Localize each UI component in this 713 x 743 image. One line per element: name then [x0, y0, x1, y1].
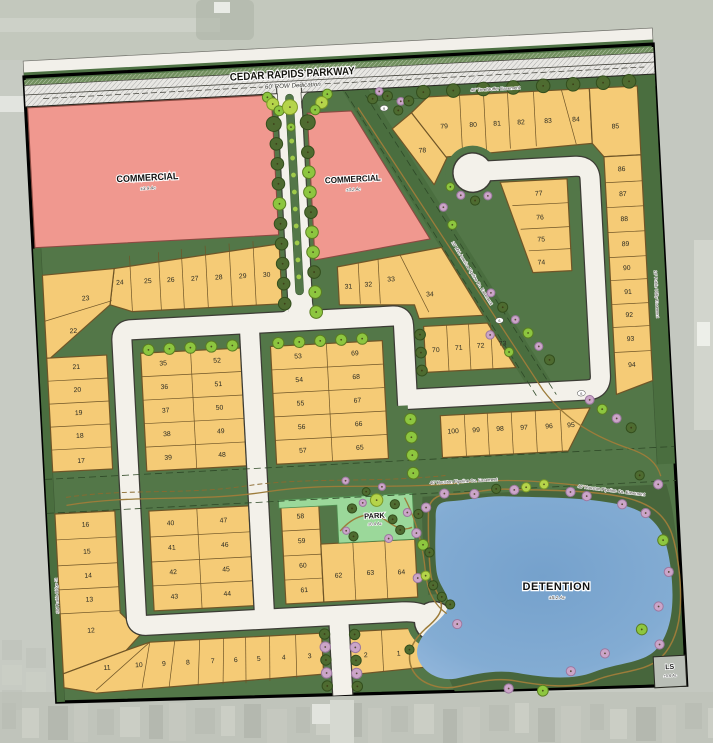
svg-text:98: 98 [496, 426, 504, 433]
svg-text:10: 10 [135, 662, 143, 669]
svg-text:79: 79 [440, 123, 448, 130]
svg-text:33: 33 [387, 276, 395, 283]
svg-text:99: 99 [472, 427, 480, 434]
svg-text:32: 32 [364, 281, 372, 288]
svg-text:34: 34 [426, 291, 434, 298]
svg-text:37: 37 [162, 407, 170, 414]
svg-text:61: 61 [300, 587, 308, 594]
svg-text:86: 86 [618, 166, 626, 173]
svg-text:4: 4 [282, 654, 286, 661]
svg-text:46: 46 [221, 542, 229, 549]
svg-text:51: 51 [214, 381, 222, 388]
svg-text:19: 19 [75, 410, 83, 417]
svg-text:16: 16 [82, 521, 90, 528]
svg-text:24: 24 [116, 279, 124, 286]
svg-text:36: 36 [160, 384, 168, 391]
svg-text:75: 75 [537, 236, 545, 243]
svg-text:77: 77 [535, 190, 543, 197]
svg-text:30: 30 [263, 272, 271, 279]
svg-text:68: 68 [352, 374, 360, 381]
svg-text:21: 21 [72, 364, 80, 371]
svg-text:60: 60 [299, 562, 307, 569]
svg-text:35: 35 [159, 360, 167, 367]
svg-text:47: 47 [220, 517, 228, 524]
svg-text:69: 69 [351, 350, 359, 357]
svg-text:49: 49 [217, 428, 225, 435]
svg-text:41: 41 [168, 545, 176, 552]
svg-text:23: 23 [82, 295, 90, 302]
svg-text:93: 93 [627, 336, 635, 343]
svg-text:15: 15 [83, 548, 91, 555]
svg-text:26: 26 [167, 277, 175, 284]
svg-text:6: 6 [383, 107, 385, 111]
svg-text:57: 57 [299, 447, 307, 454]
svg-text:52: 52 [213, 357, 221, 364]
svg-text:29: 29 [239, 273, 247, 280]
svg-text:6: 6 [498, 319, 500, 323]
svg-text:DETENTION: DETENTION [523, 581, 591, 593]
svg-text:14: 14 [84, 572, 92, 579]
svg-text:50: 50 [216, 405, 224, 412]
svg-text:71: 71 [455, 345, 463, 352]
svg-text:94: 94 [628, 362, 636, 369]
svg-text:44: 44 [223, 591, 231, 598]
svg-text:82: 82 [517, 119, 525, 126]
svg-text:88: 88 [620, 216, 628, 223]
svg-text:63: 63 [366, 570, 374, 577]
svg-text:6: 6 [580, 392, 582, 396]
svg-text:66: 66 [355, 421, 363, 428]
svg-text:3: 3 [308, 653, 312, 660]
svg-text:±0.4 Ac: ±0.4 Ac [368, 521, 382, 527]
svg-text:25: 25 [144, 278, 152, 285]
svg-text:2: 2 [364, 652, 368, 659]
svg-text:±0.6 Ac: ±0.6 Ac [663, 673, 677, 679]
svg-text:97: 97 [520, 424, 528, 431]
svg-text:±3.9 Ac: ±3.9 Ac [140, 185, 156, 191]
svg-text:91: 91 [624, 289, 632, 296]
svg-text:12: 12 [87, 627, 95, 634]
svg-text:PARK: PARK [364, 511, 386, 521]
svg-text:78: 78 [418, 147, 426, 154]
svg-text:6: 6 [234, 657, 238, 664]
svg-text:17: 17 [77, 458, 85, 465]
svg-text:28: 28 [215, 274, 223, 281]
svg-text:20: 20 [74, 387, 82, 394]
svg-text:67: 67 [353, 397, 361, 404]
svg-text:22: 22 [69, 328, 77, 335]
svg-text:18: 18 [76, 433, 84, 440]
svg-text:87: 87 [619, 191, 627, 198]
svg-text:74: 74 [537, 259, 545, 266]
svg-text:59: 59 [298, 538, 306, 545]
svg-text:81: 81 [493, 120, 501, 127]
svg-text:42: 42 [169, 569, 177, 576]
svg-text:76: 76 [536, 214, 544, 221]
svg-text:43: 43 [170, 593, 178, 600]
svg-text:58: 58 [296, 513, 304, 520]
svg-text:100: 100 [447, 428, 459, 436]
svg-text:11: 11 [103, 665, 111, 672]
svg-text:85: 85 [611, 123, 619, 130]
svg-text:72: 72 [477, 343, 485, 350]
svg-text:38: 38 [163, 431, 171, 438]
svg-text:64: 64 [398, 569, 406, 576]
svg-text:8: 8 [186, 659, 190, 666]
svg-text:96: 96 [545, 423, 553, 430]
svg-text:1: 1 [397, 650, 401, 657]
svg-text:±3.2 Ac: ±3.2 Ac [346, 186, 362, 192]
svg-text:70: 70 [432, 347, 440, 354]
svg-text:55: 55 [297, 400, 305, 407]
svg-text:9: 9 [162, 661, 166, 668]
svg-text:7: 7 [211, 658, 215, 665]
svg-text:27: 27 [191, 275, 199, 282]
svg-text:95: 95 [567, 422, 575, 429]
svg-text:92: 92 [625, 312, 633, 319]
svg-text:54: 54 [295, 377, 303, 384]
svg-text:84: 84 [572, 116, 580, 123]
svg-text:83: 83 [544, 118, 552, 125]
svg-text:89: 89 [622, 241, 630, 248]
svg-text:80: 80 [469, 122, 477, 129]
svg-text:48: 48 [218, 452, 226, 459]
svg-text:62: 62 [335, 572, 343, 579]
svg-text:56: 56 [298, 424, 306, 431]
svg-text:40: 40 [167, 520, 175, 527]
svg-text:13: 13 [86, 596, 94, 603]
svg-text:LS: LS [665, 664, 675, 671]
svg-text:65: 65 [356, 444, 364, 451]
svg-text:53: 53 [294, 353, 302, 360]
svg-text:31: 31 [344, 283, 352, 290]
svg-text:90: 90 [623, 265, 631, 272]
svg-text:45: 45 [222, 566, 230, 573]
svg-text:39: 39 [164, 454, 172, 461]
svg-text:±5.2 Ac: ±5.2 Ac [549, 595, 566, 601]
svg-text:5: 5 [257, 656, 261, 663]
